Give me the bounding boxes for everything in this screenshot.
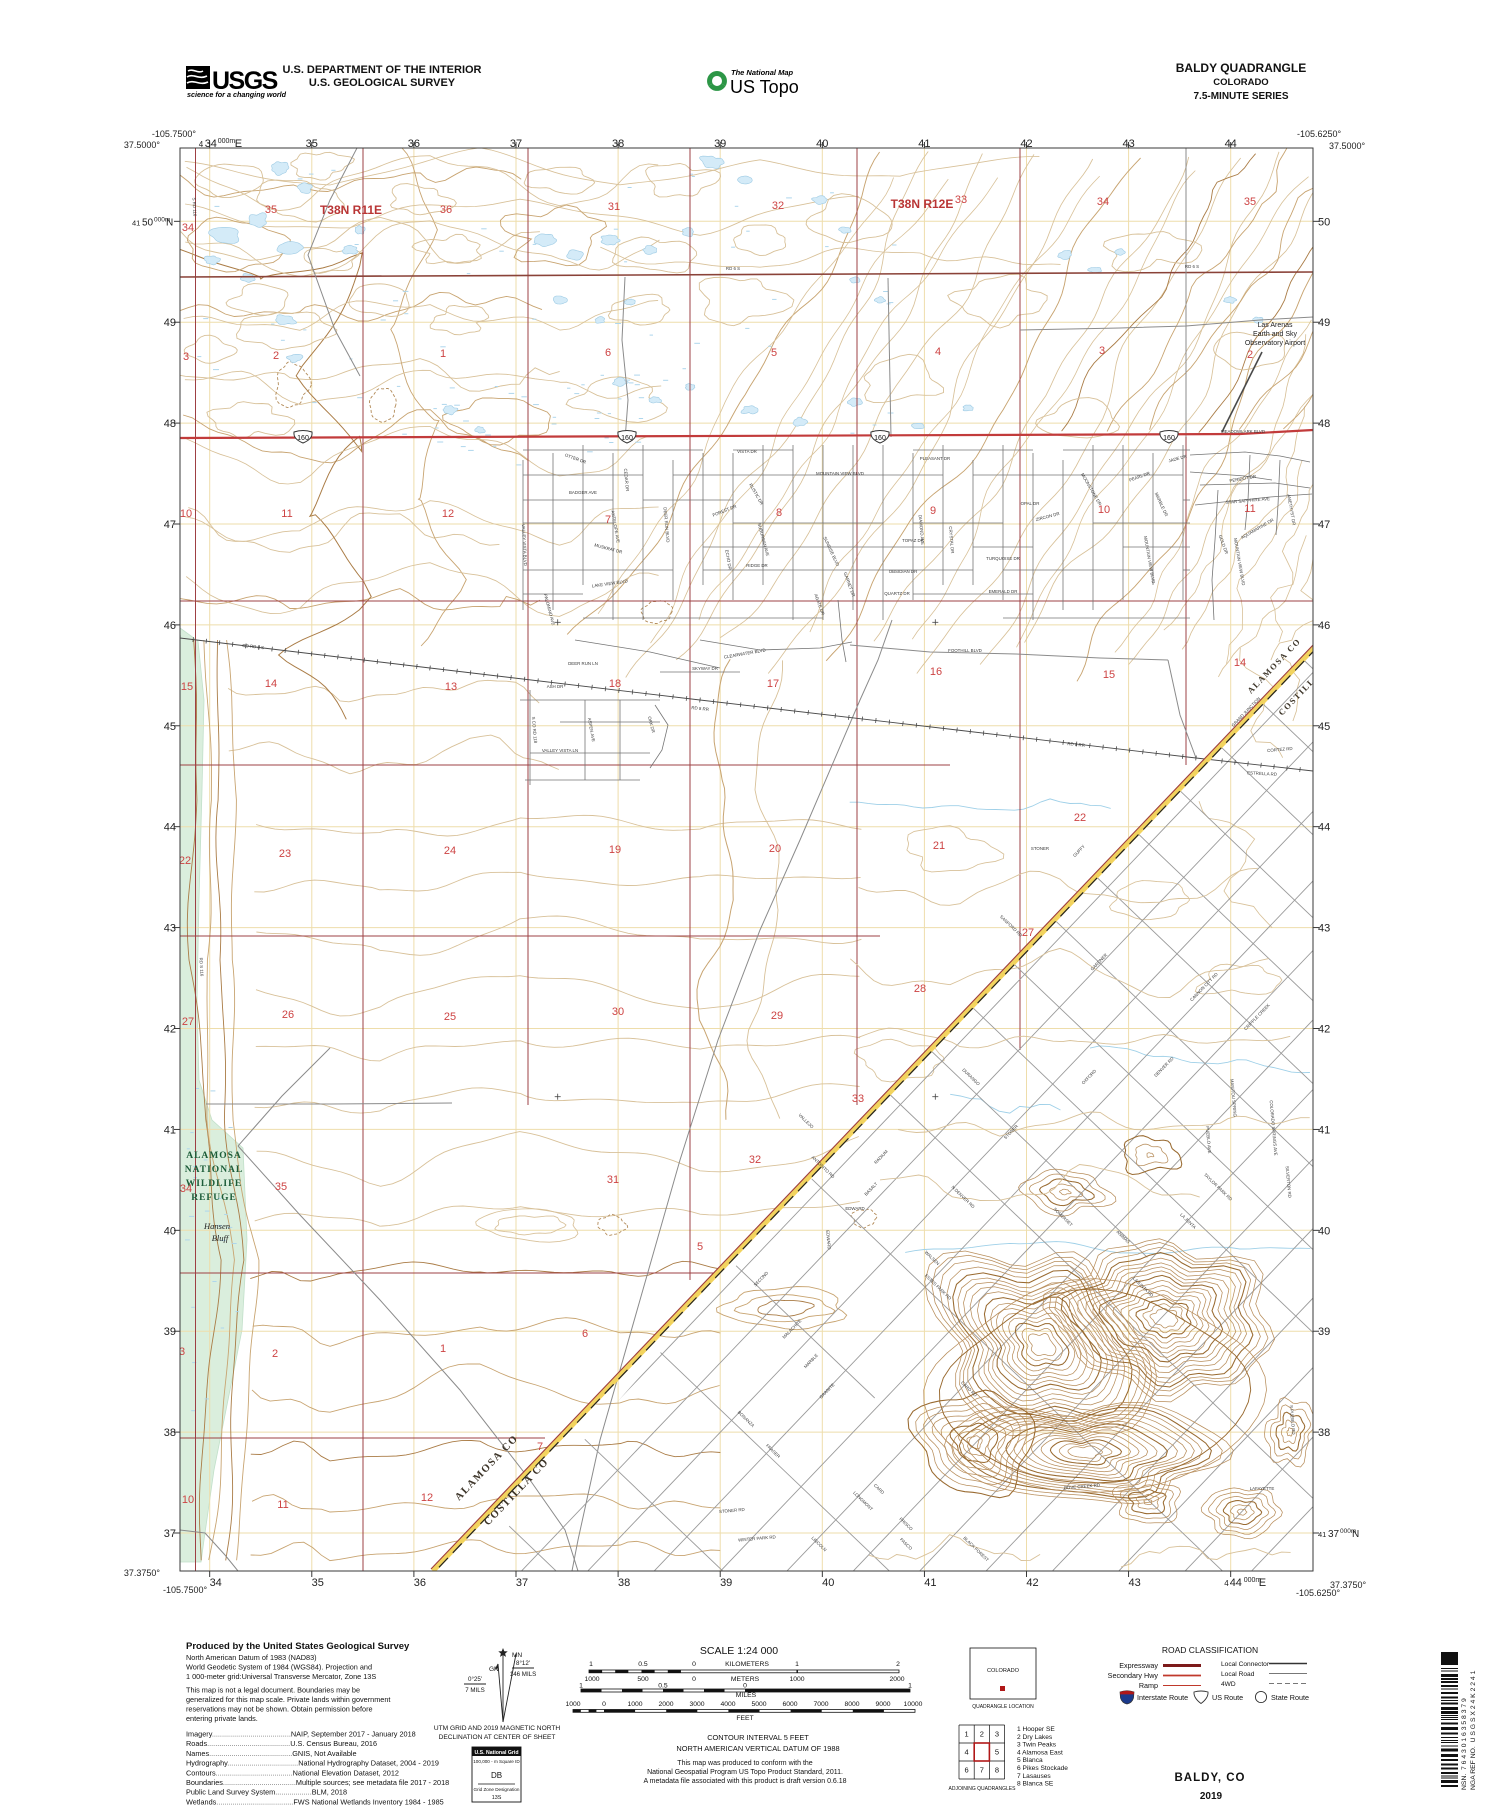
svg-text:generalized for this map scale: generalized for this map scale. Private … (186, 1695, 390, 1704)
svg-text:160: 160 (297, 435, 309, 442)
svg-text:ALAMOSA: ALAMOSA (186, 1151, 242, 1161)
svg-text:MOUNTAIN VIEW BLVD: MOUNTAIN VIEW BLVD (816, 471, 864, 476)
svg-text:32: 32 (749, 1154, 761, 1166)
svg-text:MILES: MILES (736, 1692, 757, 1699)
svg-text:8°12': 8°12' (516, 1660, 530, 1667)
svg-text:0.5: 0.5 (658, 1683, 668, 1690)
svg-text:ROAD CLASSIFICATION: ROAD CLASSIFICATION (1162, 1645, 1258, 1655)
svg-text:31: 31 (608, 201, 620, 213)
svg-text:21: 21 (933, 840, 945, 852)
svg-text:This map is not a legal docume: This map is not a legal document. Bounda… (186, 1686, 360, 1695)
svg-text:27: 27 (182, 1016, 194, 1028)
svg-text:9: 9 (930, 505, 936, 517)
svg-text:BALDY QUADRANGLE: BALDY QUADRANGLE (1176, 61, 1306, 75)
svg-text:8000: 8000 (844, 1701, 859, 1708)
svg-text:10: 10 (182, 1494, 194, 1506)
svg-text:0: 0 (743, 1683, 747, 1690)
svg-text:43: 43 (1318, 923, 1330, 935)
svg-text:KILOMETERS: KILOMETERS (725, 1661, 769, 1668)
svg-text:Imagery.......................: Imagery.................................… (186, 1730, 416, 1739)
svg-text:12: 12 (421, 1492, 433, 1504)
svg-text:13S: 13S (492, 1795, 502, 1801)
svg-text:41: 41 (132, 218, 140, 227)
svg-text:35: 35 (275, 1181, 287, 1193)
svg-text:10: 10 (180, 508, 192, 520)
svg-text:Bluff: Bluff (212, 1233, 230, 1243)
svg-text:38: 38 (1318, 1427, 1330, 1439)
svg-text:1: 1 (440, 348, 446, 360)
svg-text:CONTOUR INTERVAL 5 FEET: CONTOUR INTERVAL 5 FEET (707, 1733, 809, 1742)
svg-text:Local Connector: Local Connector (1221, 1661, 1270, 1668)
svg-text:Produced by the United States: Produced by the United States Geological… (186, 1641, 410, 1652)
svg-text:1: 1 (440, 1343, 446, 1355)
svg-text:Boundaries....................: Boundaries..............................… (186, 1778, 449, 1787)
svg-text:-105.6250°: -105.6250° (1296, 1588, 1341, 1598)
svg-text:Grid Zone Designation: Grid Zone Designation (474, 1787, 520, 1792)
svg-text:33: 33 (852, 1093, 864, 1105)
svg-text:7: 7 (537, 1441, 543, 1453)
svg-text:7000: 7000 (813, 1701, 828, 1708)
svg-text:entering private lands.: entering private lands. (186, 1714, 258, 1723)
svg-text:12: 12 (442, 508, 454, 520)
svg-text:10: 10 (1098, 504, 1110, 516)
svg-text:24: 24 (444, 845, 456, 857)
svg-text:TURQUOISE DR: TURQUOISE DR (986, 556, 1020, 561)
svg-text:49: 49 (1318, 317, 1330, 329)
svg-text:160: 160 (874, 435, 886, 442)
svg-text:MN: MN (512, 1652, 522, 1659)
svg-text:14: 14 (1234, 657, 1246, 669)
svg-text:29: 29 (771, 1010, 783, 1022)
svg-text:US Route: US Route (1212, 1693, 1243, 1702)
svg-text:28: 28 (914, 983, 926, 995)
svg-text:3 Twin Peaks: 3 Twin Peaks (1017, 1742, 1057, 1749)
svg-text:World Geodetic System of 1984: World Geodetic System of 1984 (WGS84). P… (186, 1663, 372, 1672)
svg-text:RD 6 S: RD 6 S (726, 266, 740, 271)
svg-text:42: 42 (164, 1024, 176, 1036)
svg-text:COLORADO: COLORADO (987, 1668, 1020, 1674)
svg-text:2000: 2000 (658, 1701, 673, 1708)
svg-text:8: 8 (776, 507, 782, 519)
svg-text:11: 11 (1244, 503, 1255, 515)
svg-text:1: 1 (908, 1683, 912, 1690)
svg-text:7: 7 (980, 1766, 984, 1775)
svg-text:6: 6 (605, 347, 611, 359)
svg-text:37.5000°: 37.5000° (1329, 141, 1366, 151)
svg-text:46: 46 (1318, 620, 1330, 632)
svg-text:National Geospatial Program US: National Geospatial Program US Topo Prod… (647, 1769, 843, 1776)
svg-text:DECLINATION AT CENTER OF SHEET: DECLINATION AT CENTER OF SHEET (439, 1734, 556, 1741)
svg-text:U.S. National Grid: U.S. National Grid (474, 1750, 518, 1756)
svg-text:SKYWAY DR: SKYWAY DR (692, 666, 718, 671)
svg-text:39: 39 (164, 1326, 176, 1338)
svg-text:Expressway: Expressway (1119, 1661, 1158, 1670)
svg-text:36: 36 (414, 1577, 426, 1589)
svg-text:49: 49 (164, 317, 176, 329)
svg-text:45: 45 (1318, 721, 1330, 733)
svg-text:1: 1 (579, 1683, 583, 1690)
svg-text:41: 41 (1318, 1530, 1326, 1539)
svg-text:Ramp: Ramp (1139, 1681, 1158, 1690)
svg-text:EMERALD DR: EMERALD DR (989, 589, 1018, 594)
svg-text:T38N R11E: T38N R11E (320, 203, 382, 217)
svg-text:REFUGE: REFUGE (191, 1193, 237, 1203)
svg-text:7: 7 (605, 514, 611, 526)
svg-text:E: E (1259, 1577, 1266, 1589)
svg-text:44: 44 (164, 822, 176, 834)
svg-text:43: 43 (164, 923, 176, 935)
svg-text:NORTH AMERICAN VERTICAL DATUM: NORTH AMERICAN VERTICAL DATUM OF 1988 (676, 1744, 839, 1753)
svg-text:40: 40 (164, 1225, 176, 1237)
svg-text:48: 48 (164, 418, 176, 430)
svg-text:Wetlands......................: Wetlands................................… (186, 1797, 444, 1806)
svg-text:17: 17 (767, 678, 779, 690)
svg-text:QUADRANGLE LOCATION: QUADRANGLE LOCATION (972, 1704, 1034, 1710)
svg-text:Interstate Route: Interstate Route (1137, 1693, 1188, 1702)
svg-text:OBSIDIAN DR: OBSIDIAN DR (889, 569, 918, 574)
svg-text:Contours......................: Contours................................… (186, 1768, 399, 1777)
svg-text:Hydrography...................: Hydrography.............................… (186, 1759, 439, 1768)
svg-text:N: N (1352, 1529, 1359, 1540)
svg-text:NATIONAL: NATIONAL (185, 1165, 244, 1175)
svg-text:Observatory Airport: Observatory Airport (1245, 340, 1305, 347)
svg-text:-105.6250°: -105.6250° (1297, 129, 1342, 139)
svg-text:33: 33 (955, 194, 967, 206)
svg-text:11: 11 (281, 508, 292, 520)
svg-text:37.5000°: 37.5000° (124, 140, 161, 150)
svg-text:37.3750°: 37.3750° (124, 1568, 161, 1578)
svg-text:BALDY, CO: BALDY, CO (1175, 1772, 1246, 1784)
svg-text:14: 14 (265, 678, 277, 690)
svg-text:50: 50 (142, 217, 154, 228)
svg-text:Roads.........................: Roads...................................… (186, 1739, 377, 1748)
svg-text:RD 6 S: RD 6 S (1185, 264, 1199, 269)
svg-text:6: 6 (965, 1766, 969, 1775)
svg-text:42: 42 (1318, 1024, 1330, 1036)
svg-text:44: 44 (1318, 822, 1330, 834)
svg-text:10000: 10000 (904, 1701, 923, 1708)
svg-text:6: 6 (582, 1328, 588, 1340)
svg-text:U.S. GEOLOGICAL SURVEY: U.S. GEOLOGICAL SURVEY (309, 77, 456, 89)
svg-text:32: 32 (772, 200, 784, 212)
svg-text:0: 0 (692, 1676, 696, 1683)
svg-text:48: 48 (1318, 418, 1330, 430)
svg-text:3000: 3000 (689, 1701, 704, 1708)
svg-text:Hansen: Hansen (203, 1221, 230, 1231)
svg-text:4 Alamosa East: 4 Alamosa East (1017, 1749, 1063, 1756)
svg-text:8: 8 (995, 1766, 999, 1775)
svg-text:35: 35 (1244, 196, 1256, 208)
svg-text:3: 3 (183, 351, 189, 363)
svg-text:4: 4 (1224, 1579, 1229, 1588)
svg-text:27: 27 (1022, 927, 1034, 939)
svg-text:18: 18 (609, 678, 621, 690)
svg-text:6000: 6000 (782, 1701, 797, 1708)
svg-text:RD S 116: RD S 116 (199, 957, 205, 977)
svg-text:4: 4 (965, 1748, 969, 1757)
svg-text:000m: 000m (218, 138, 236, 145)
svg-text:2: 2 (896, 1661, 900, 1668)
svg-text:WILDLIFE: WILDLIFE (186, 1179, 243, 1189)
svg-text:NSN. 7 6 4 3 0 1 6 3 5 8 3 7: NSN. 7 6 4 3 0 1 6 3 5 8 3 7 9 (1461, 1698, 1468, 1790)
svg-text:QUARTZ DR: QUARTZ DR (884, 591, 910, 596)
svg-text:38: 38 (164, 1427, 176, 1439)
svg-text:11: 11 (277, 1499, 288, 1511)
svg-text:37: 37 (164, 1528, 176, 1540)
svg-text:OPAL DR: OPAL DR (1021, 501, 1040, 506)
svg-text:US Topo: US Topo (730, 77, 799, 97)
svg-text:2: 2 (1247, 349, 1253, 361)
svg-text:1: 1 (965, 1730, 969, 1739)
svg-text:4WD: 4WD (1221, 1681, 1236, 1688)
svg-text:2 Dry Lakes: 2 Dry Lakes (1017, 1734, 1053, 1741)
svg-text:EDWARD: EDWARD (845, 1206, 864, 1211)
svg-text:S RD 116: S RD 116 (192, 197, 198, 217)
svg-text:44: 44 (1230, 1577, 1242, 1589)
svg-text:NGA REF NO. U S G S X 2 4 K 2: NGA REF NO. U S G S X 2 4 K 2 2 4 1 (1470, 1670, 1477, 1790)
svg-text:7 Lasauses: 7 Lasauses (1017, 1773, 1051, 1780)
svg-text:41: 41 (924, 1577, 936, 1589)
svg-text:37: 37 (1328, 1529, 1340, 1540)
svg-text:North American Datum of 1983 (: North American Datum of 1983 (NAD83) (186, 1653, 317, 1662)
svg-text:science for a changing world: science for a changing world (187, 90, 287, 99)
svg-text:0: 0 (602, 1701, 606, 1708)
svg-text:7 MILS: 7 MILS (465, 1687, 485, 1694)
svg-text:35: 35 (312, 1577, 324, 1589)
svg-text:This map was produced to confo: This map was produced to conform with th… (677, 1760, 813, 1767)
svg-text:20: 20 (769, 843, 781, 855)
svg-text:1 Hooper SE: 1 Hooper SE (1017, 1726, 1055, 1733)
svg-text:22: 22 (179, 855, 191, 867)
svg-text:39: 39 (720, 1577, 732, 1589)
svg-text:36: 36 (440, 204, 452, 216)
svg-text:26: 26 (282, 1009, 294, 1021)
svg-text:2000: 2000 (889, 1676, 904, 1683)
svg-text:5: 5 (771, 347, 777, 359)
svg-text:0.5: 0.5 (638, 1661, 648, 1668)
svg-text:15: 15 (181, 681, 193, 693)
svg-text:37: 37 (516, 1577, 528, 1589)
svg-text:Las Arenas: Las Arenas (1257, 322, 1293, 329)
svg-text:Local Road: Local Road (1221, 1671, 1255, 1678)
svg-text:19: 19 (609, 844, 621, 856)
svg-text:5: 5 (995, 1748, 999, 1757)
svg-text:DEER RUN LN: DEER RUN LN (568, 661, 598, 666)
svg-text:Earth and Sky: Earth and Sky (1253, 331, 1297, 338)
svg-text:3: 3 (1099, 345, 1105, 357)
svg-text:1000: 1000 (584, 1676, 599, 1683)
svg-text:UTM GRID AND 2019 MAGNETIC NOR: UTM GRID AND 2019 MAGNETIC NORTH (434, 1725, 561, 1732)
svg-text:40: 40 (1318, 1225, 1330, 1237)
svg-text:46: 46 (164, 620, 176, 632)
svg-text:42: 42 (1026, 1577, 1038, 1589)
svg-text:34: 34 (1097, 196, 1109, 208)
svg-text:41: 41 (1318, 1124, 1330, 1136)
svg-text:500: 500 (637, 1676, 649, 1683)
svg-text:VALLEY VISTA LN: VALLEY VISTA LN (542, 748, 578, 753)
svg-text:34: 34 (210, 1577, 222, 1589)
svg-text:A metadata file associated wit: A metadata file associated with this pro… (643, 1778, 846, 1785)
svg-text:0°25': 0°25' (468, 1676, 482, 1683)
svg-text:160: 160 (621, 435, 633, 442)
svg-text:9000: 9000 (875, 1701, 890, 1708)
svg-text:25: 25 (444, 1011, 456, 1023)
svg-text:LAFAYETTE: LAFAYETTE (1250, 1486, 1275, 1491)
svg-text:43: 43 (1128, 1577, 1140, 1589)
svg-text:4: 4 (935, 346, 941, 358)
svg-text:160: 160 (1163, 435, 1175, 442)
svg-text:7.5-MINUTE SERIES: 7.5-MINUTE SERIES (1193, 91, 1288, 102)
svg-text:23: 23 (279, 848, 291, 860)
svg-text:0: 0 (692, 1661, 696, 1668)
svg-text:RIDGE DR: RIDGE DR (746, 563, 767, 568)
svg-text:16: 16 (930, 666, 942, 678)
svg-text:-105.7500°: -105.7500° (152, 129, 197, 139)
svg-text:MEADOWLARK BLVD: MEADOWLARK BLVD (1221, 429, 1265, 434)
svg-text:5 Blanca: 5 Blanca (1017, 1757, 1043, 1764)
svg-text:ASH DR: ASH DR (547, 684, 564, 689)
svg-text:6 Pikes Stockade: 6 Pikes Stockade (1017, 1765, 1068, 1772)
svg-text:1000: 1000 (789, 1676, 804, 1683)
svg-text:35: 35 (265, 204, 277, 216)
svg-text:15: 15 (1103, 669, 1115, 681)
svg-text:47: 47 (1318, 519, 1330, 531)
svg-text:T38N R12E: T38N R12E (891, 197, 954, 211)
svg-text:BADGER AVE: BADGER AVE (569, 490, 597, 495)
svg-text:ADJOINING QUADRANGLES: ADJOINING QUADRANGLES (949, 1786, 1017, 1792)
svg-text:FEET: FEET (736, 1715, 753, 1722)
svg-text:34: 34 (182, 222, 194, 234)
svg-text:1000: 1000 (565, 1701, 580, 1708)
svg-text:GN: GN (489, 1666, 499, 1673)
svg-text:1 000-meter grid:Universal Tra: 1 000-meter grid:Universal Transverse Me… (186, 1672, 376, 1681)
svg-text:1000: 1000 (627, 1701, 642, 1708)
svg-text:U.S. DEPARTMENT OF THE INTERIO: U.S. DEPARTMENT OF THE INTERIOR (282, 64, 481, 76)
svg-text:Public Land Survey System..: Public Land Survey System...............… (186, 1788, 347, 1797)
svg-text:45: 45 (164, 721, 176, 733)
svg-text:3: 3 (995, 1730, 999, 1739)
svg-text:FOOTHILL BLVD: FOOTHILL BLVD (948, 648, 982, 653)
svg-text:50: 50 (1318, 216, 1330, 228)
svg-text:-105.7500°: -105.7500° (163, 1585, 208, 1595)
svg-text:1: 1 (589, 1661, 593, 1668)
svg-text:38: 38 (618, 1577, 630, 1589)
svg-text:40: 40 (822, 1577, 834, 1589)
svg-text:VISTA DR: VISTA DR (737, 449, 757, 454)
svg-text:2: 2 (980, 1730, 984, 1739)
svg-text:13: 13 (445, 681, 457, 693)
svg-text:reservations may not be shown.: reservations may not be shown. Obtain pe… (186, 1705, 373, 1714)
svg-text:2: 2 (272, 1348, 278, 1360)
svg-text:5000: 5000 (751, 1701, 766, 1708)
svg-text:Secondary Hwy: Secondary Hwy (1108, 1671, 1159, 1680)
svg-text:146 MILS: 146 MILS (510, 1671, 536, 1678)
svg-text:Names.........................: Names...................................… (186, 1749, 357, 1758)
svg-text:PLEASANT DR: PLEASANT DR (920, 456, 950, 461)
svg-text:30: 30 (612, 1006, 624, 1018)
svg-text:5: 5 (697, 1241, 703, 1253)
svg-text:N: N (166, 217, 173, 228)
svg-text:The National Map: The National Map (731, 68, 794, 77)
svg-text:8 Blanca SE: 8 Blanca SE (1017, 1781, 1054, 1788)
svg-text:100,000 - m Square ID: 100,000 - m Square ID (473, 1759, 520, 1764)
svg-text:SCALE 1:24 000: SCALE 1:24 000 (700, 1645, 778, 1657)
svg-text:2019: 2019 (1200, 1791, 1223, 1802)
svg-text:4000: 4000 (720, 1701, 735, 1708)
svg-text:47: 47 (164, 519, 176, 531)
svg-text:1: 1 (795, 1661, 799, 1668)
svg-text:STONER: STONER (1031, 846, 1049, 851)
svg-text:39: 39 (1318, 1326, 1330, 1338)
svg-text:41: 41 (164, 1124, 176, 1136)
svg-text:State Route: State Route (1271, 1693, 1309, 1702)
svg-text:COLORADO: COLORADO (1213, 77, 1268, 88)
svg-text:2: 2 (273, 350, 279, 362)
svg-text:31: 31 (607, 1174, 619, 1186)
svg-text:22: 22 (1074, 812, 1086, 824)
svg-text:DB: DB (491, 1771, 502, 1780)
